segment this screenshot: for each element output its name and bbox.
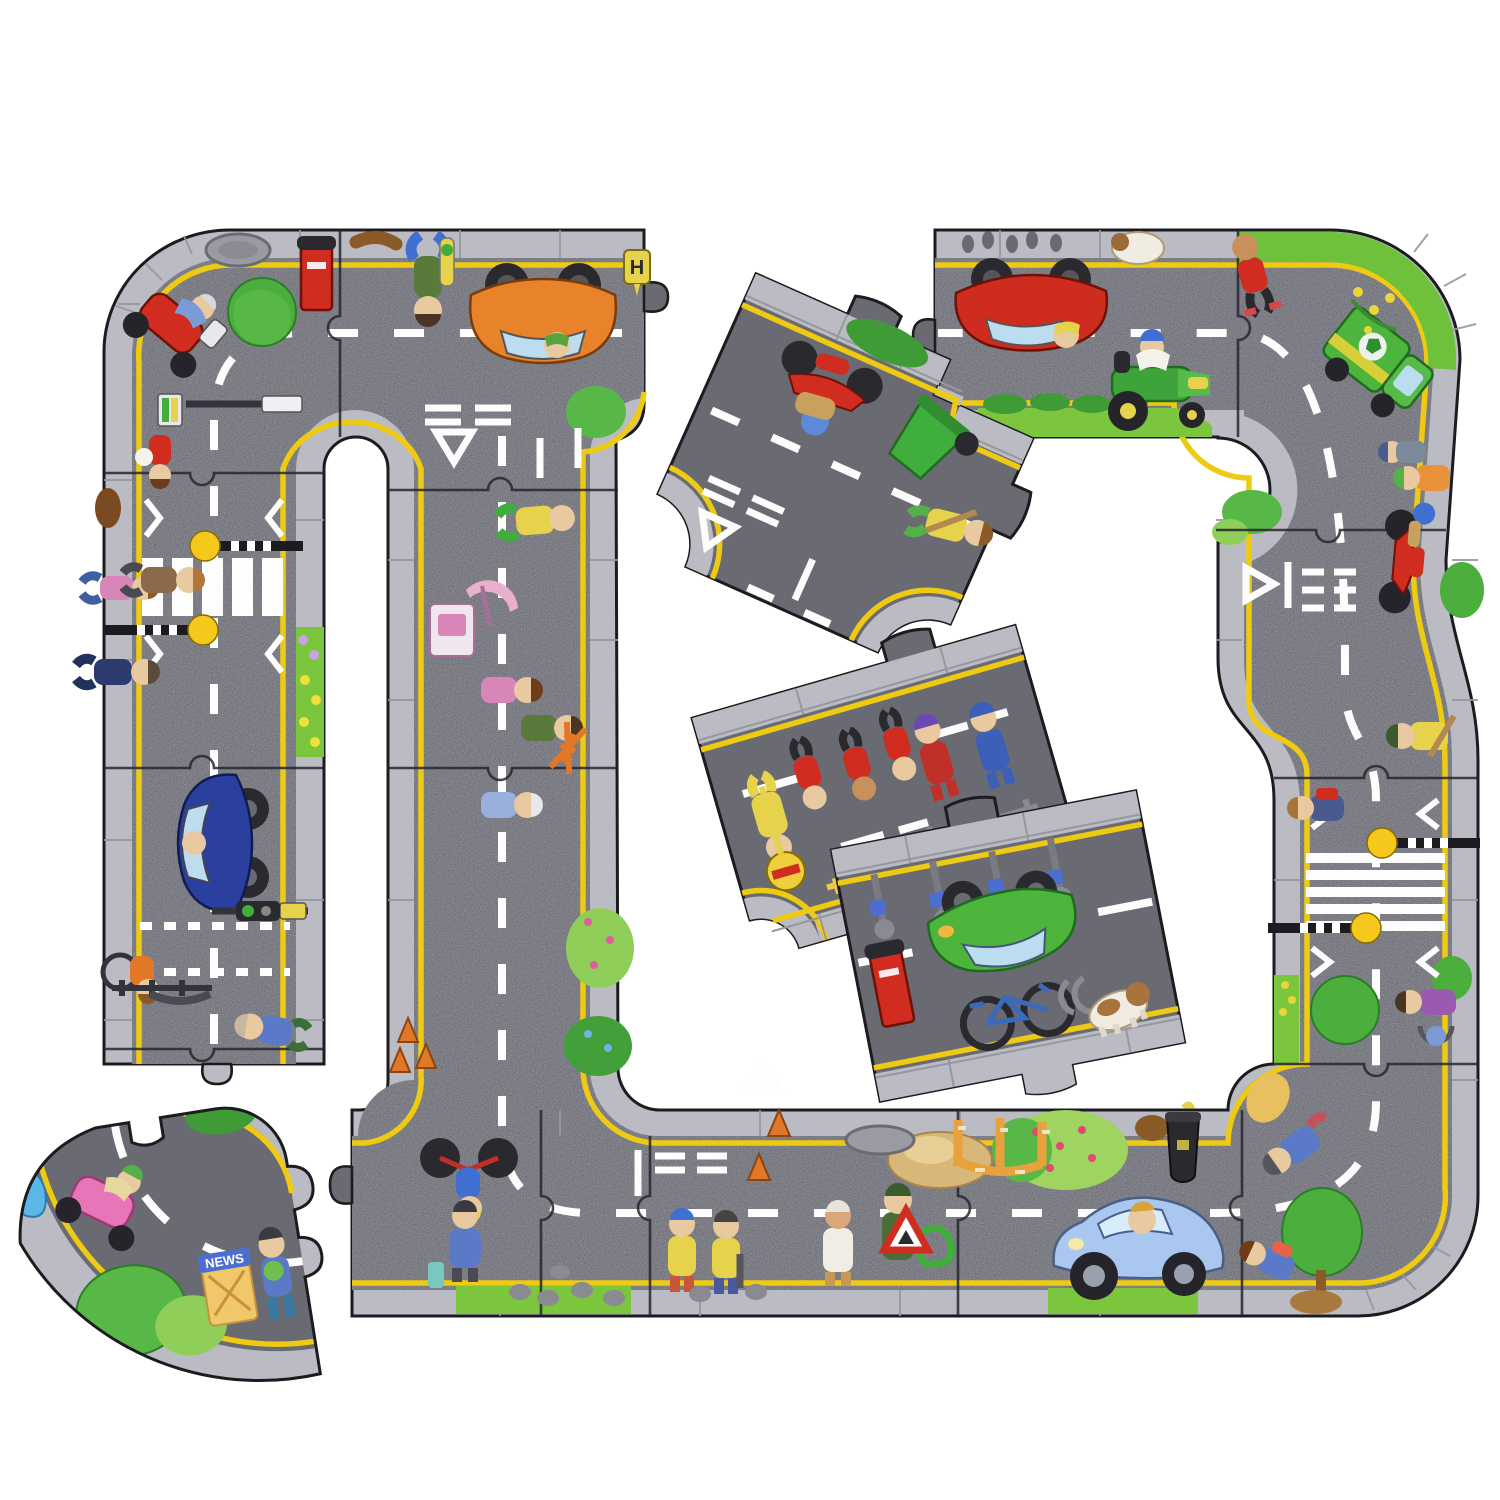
svg-text:H: H (630, 257, 644, 279)
